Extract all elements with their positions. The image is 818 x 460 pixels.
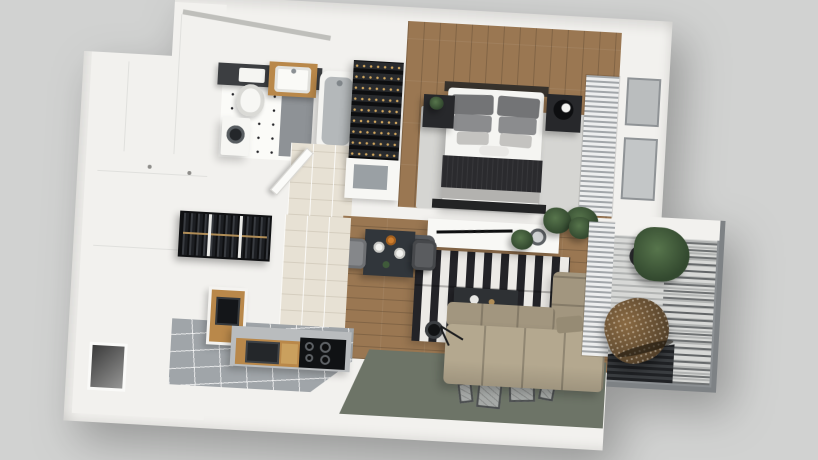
sofa-seat	[443, 324, 606, 393]
picture-frame	[457, 382, 473, 404]
wine-rack	[348, 60, 403, 161]
pillow	[457, 131, 489, 145]
toilet-cistern	[239, 68, 266, 83]
floor-plan	[63, 0, 747, 460]
wardrobe-clothes	[178, 211, 272, 262]
bedroom-curtains	[579, 75, 620, 217]
apartment-slab	[63, 0, 672, 453]
cutting-board	[281, 343, 298, 364]
sofa-pillow	[556, 315, 583, 333]
counter-appliance	[245, 340, 280, 364]
render-canvas	[0, 0, 818, 460]
balcony	[606, 215, 725, 393]
dining-chair-right	[411, 240, 437, 271]
pillow	[451, 94, 493, 115]
bottom-niche	[87, 342, 128, 392]
window-pane	[621, 137, 658, 201]
pillow-roll	[479, 145, 510, 157]
kitchen-walkway-floor	[279, 214, 351, 330]
bathtub-basin	[321, 76, 353, 145]
entry-niche	[134, 18, 162, 55]
window-pane	[625, 77, 662, 127]
pillow	[453, 114, 492, 133]
oven	[215, 297, 241, 326]
wine-cabinet-drawer	[353, 164, 388, 190]
